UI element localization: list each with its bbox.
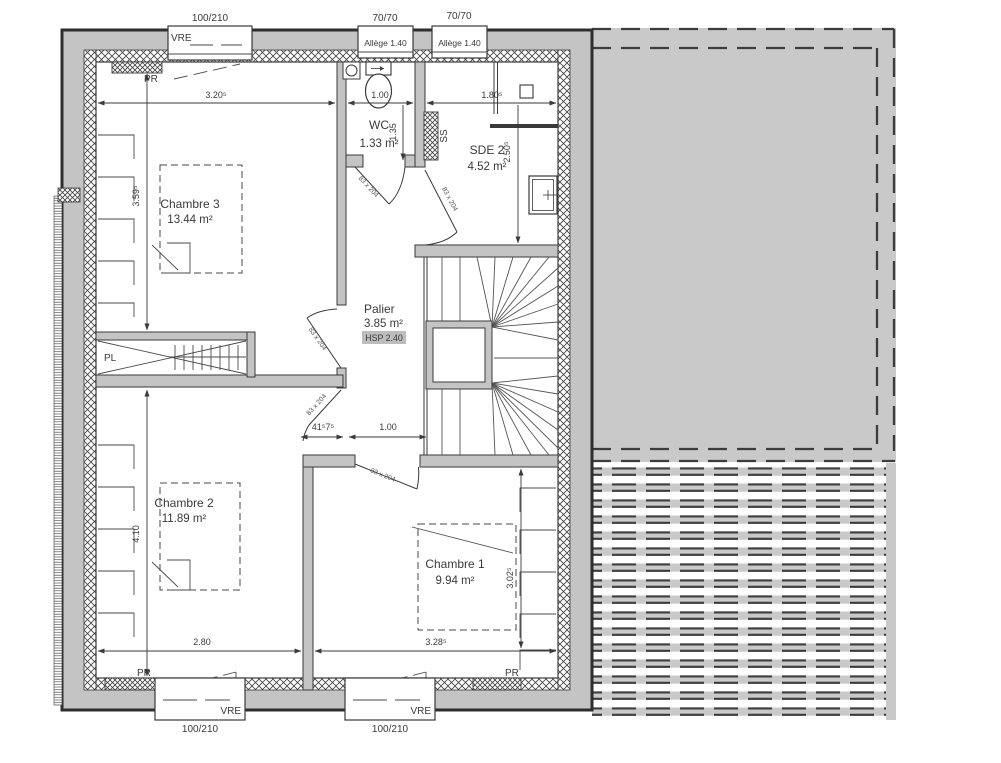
svg-text:3.85 m²: 3.85 m² bbox=[364, 318, 403, 330]
wall-ch3-east bbox=[337, 62, 346, 305]
window-size-label: 100/210 bbox=[182, 724, 219, 735]
dim-ch2-depth: 4.10 bbox=[131, 525, 141, 543]
window-type-label: VRE bbox=[220, 706, 241, 717]
dim-ch3-width: 3.20⁵ bbox=[205, 90, 227, 100]
floor-plan-page: VRE 100/210 Allège 1.40 70/70 Allège 1.4… bbox=[0, 0, 1001, 763]
dim-palier-door: 1.00 bbox=[379, 422, 397, 432]
window-allege-label: Allège 1.40 bbox=[438, 38, 481, 48]
wall-wc-sde2 bbox=[415, 62, 425, 167]
window-vre-bottom-2: VRE 100/210 bbox=[345, 672, 435, 735]
radiator bbox=[105, 678, 155, 690]
wall-vent bbox=[58, 188, 80, 202]
wall-pl-south bbox=[96, 375, 343, 387]
radiator-label: PR bbox=[137, 668, 151, 679]
duct-label: SS bbox=[439, 129, 450, 143]
wall-ch2-ch1 bbox=[303, 455, 313, 690]
radiator-label: PR bbox=[144, 74, 158, 85]
svg-text:Chambre 3: Chambre 3 bbox=[160, 197, 220, 211]
terrace-area bbox=[592, 463, 896, 720]
dim-sde2-width: 1.80⁵ bbox=[481, 90, 503, 100]
dim-wc-width: 1.00 bbox=[371, 90, 389, 100]
window-type-label: VRE bbox=[171, 33, 192, 44]
wall-palier-south-left bbox=[303, 455, 355, 467]
svg-text:13.44 m²: 13.44 m² bbox=[167, 214, 213, 226]
svg-text:1.33 m²: 1.33 m² bbox=[360, 138, 399, 150]
window-allege-label: Allège 1.40 bbox=[364, 38, 407, 48]
radiator bbox=[473, 678, 521, 690]
svg-text:SDE 2: SDE 2 bbox=[470, 143, 505, 157]
wall-palier-south-right bbox=[420, 455, 558, 467]
closet-label: PL bbox=[104, 353, 117, 364]
duct bbox=[424, 112, 438, 160]
roof-area bbox=[592, 28, 896, 462]
washbasin bbox=[529, 176, 558, 214]
stair-void bbox=[433, 328, 485, 382]
window-7070-1: Allège 1.40 70/70 bbox=[358, 13, 413, 58]
window-7070-2: Allège 1.40 70/70 bbox=[432, 11, 487, 58]
exterior-walls bbox=[54, 30, 592, 710]
svg-text:4.52 m²: 4.52 m² bbox=[468, 161, 507, 173]
svg-text:Palier: Palier bbox=[364, 302, 395, 316]
gutter-strip bbox=[54, 196, 62, 705]
window-size-label: 100/210 bbox=[372, 724, 409, 735]
window-type-label: VRE bbox=[410, 706, 431, 717]
svg-text:Chambre 2: Chambre 2 bbox=[154, 496, 214, 510]
wall-wc-south-left bbox=[346, 155, 363, 167]
window-size-label: 70/70 bbox=[446, 11, 471, 22]
svg-text:11.89 m²: 11.89 m² bbox=[162, 513, 207, 525]
radiator-label: PR bbox=[505, 668, 519, 679]
wall-sde2-south bbox=[415, 245, 558, 257]
svg-text:WC: WC bbox=[369, 118, 389, 132]
radiator bbox=[112, 62, 162, 73]
window-size-label: 70/70 bbox=[372, 13, 397, 24]
floor-plan-svg: VRE 100/210 Allège 1.40 70/70 Allège 1.4… bbox=[0, 0, 1001, 763]
ceiling-height-label: HSP 2.40 bbox=[365, 333, 403, 343]
dim-ch3-depth: 3.59⁵ bbox=[131, 185, 141, 207]
svg-text:Chambre 1: Chambre 1 bbox=[425, 557, 485, 571]
wall-pl-east bbox=[247, 332, 255, 377]
window-size-label: 100/210 bbox=[192, 13, 229, 24]
dim-palier-small: 41⁵7⁵ bbox=[312, 422, 335, 432]
insulation-left bbox=[84, 50, 96, 690]
dim-ch1-width: 3.28⁵ bbox=[425, 637, 447, 647]
dim-ch1-depth: 3.02⁵ bbox=[505, 567, 515, 589]
dim-ch2-width: 2.80 bbox=[193, 637, 211, 647]
insulation-top bbox=[96, 50, 558, 62]
wall-pl-north bbox=[96, 332, 255, 340]
window-vre-bottom-1: VRE 100/210 bbox=[155, 672, 245, 735]
insulation-right bbox=[558, 50, 570, 690]
svg-text:9.94 m²: 9.94 m² bbox=[436, 575, 475, 587]
column bbox=[520, 85, 533, 98]
